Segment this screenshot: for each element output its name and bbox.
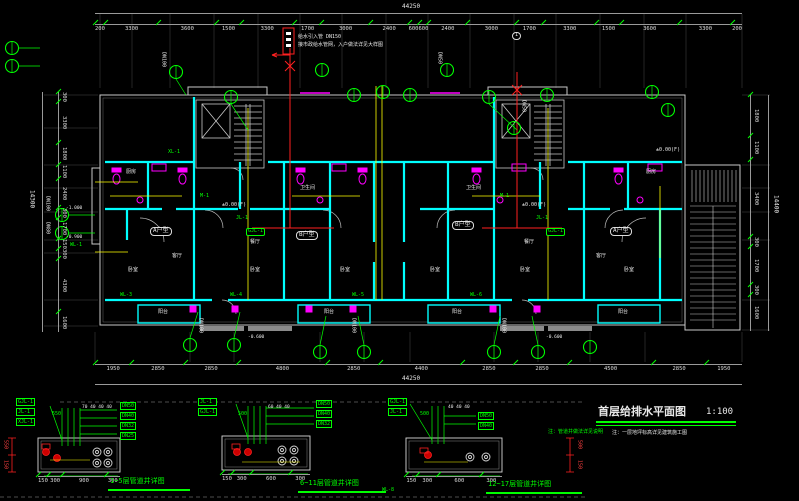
balcony-rails bbox=[138, 305, 660, 323]
riser-wl5: WL-5 bbox=[352, 293, 364, 299]
detail3-corner-label: WL-8 bbox=[382, 488, 394, 494]
detail3-right-labels: DN50DN40 bbox=[478, 412, 494, 430]
dim-chain-left: 3003300180011002400300170015030043001600 bbox=[58, 92, 69, 332]
elev-minus06-2: -0.600 bbox=[546, 336, 562, 341]
detail2-left-labels: JL-1GJL-1 bbox=[198, 398, 217, 416]
elev-minus10: -1.000 bbox=[66, 207, 82, 212]
basin-fixtures bbox=[137, 197, 643, 203]
dim-chain-top: 2003300360015003300170030002400600600240… bbox=[95, 24, 742, 32]
room-bedroom-2: 卧室 bbox=[250, 268, 260, 274]
elev-minus06-1: -0.600 bbox=[248, 336, 264, 341]
detail3-top-spacing: 40 40 40 bbox=[448, 406, 470, 411]
dim-line-top-overall bbox=[95, 13, 742, 14]
detail1-top-spacing: 70 40 40 40 bbox=[82, 406, 112, 411]
annex-stair bbox=[690, 170, 736, 328]
riser-wl3: WL-3 bbox=[120, 293, 132, 299]
supply-note-line1: 给水引入管 DN150 bbox=[298, 35, 341, 41]
detail3-note: 注：管道井做法详见说明 bbox=[548, 430, 603, 436]
pipe-dn50-t1: DN50 bbox=[436, 52, 442, 64]
drawing-sheet: 2003300360015003300170030002400600600240… bbox=[0, 0, 799, 501]
unit-label-a2: A户型 bbox=[610, 227, 632, 236]
unit-label-b2: B户型 bbox=[452, 221, 474, 230]
room-living-1: 客厅 bbox=[172, 254, 182, 260]
stair-core-left bbox=[196, 100, 264, 168]
detail1-side-dim-1: 550 bbox=[2, 440, 8, 449]
room-dining-1: 餐厅 bbox=[250, 240, 260, 246]
riser-circles bbox=[6, 42, 675, 359]
dim-line-right-overall bbox=[768, 95, 769, 331]
riser-xl1: XL-1 bbox=[168, 150, 180, 156]
pipe-dn100-b3: DN100 bbox=[500, 318, 506, 333]
grid-lines bbox=[44, 14, 770, 362]
detail-boxes bbox=[38, 436, 502, 472]
unit-label-b1: B户型 bbox=[296, 231, 318, 240]
detail2-side-dim-1: 500 bbox=[576, 440, 582, 449]
riser-wl6: WL-6 bbox=[470, 293, 482, 299]
elev-minus09: -0.900 bbox=[66, 236, 82, 241]
detail2-side-dim-2: 150 bbox=[576, 460, 582, 469]
toilet-fixtures bbox=[112, 168, 623, 184]
dim-line-bottom-overall bbox=[95, 384, 742, 385]
riser-symbols bbox=[6, 41, 675, 359]
room-kitchen-2: 厨房 bbox=[646, 170, 656, 176]
washer-fixtures bbox=[190, 306, 540, 312]
elev-zero-left: ±0.00(F) bbox=[222, 203, 246, 209]
elev-zero-right: ±0.00(F) bbox=[522, 203, 546, 209]
pipe-dn100-b1: DN100 bbox=[197, 318, 203, 333]
title-underline-1 bbox=[596, 421, 736, 423]
room-bath-2: 卫生间 bbox=[466, 186, 481, 192]
sheet-scale: 1:100 bbox=[706, 408, 733, 418]
room-bedroom-5: 卧室 bbox=[520, 268, 530, 274]
riser-m1-left: M-1 bbox=[200, 194, 209, 200]
pipe-dn80-left: DN80 bbox=[44, 222, 50, 234]
detail1-top-dim: 550 bbox=[52, 412, 61, 418]
riser-wl4: WL-4 bbox=[230, 293, 242, 299]
room-kitchen-1: 厨房 bbox=[126, 170, 136, 176]
riser-gjl1-left: GJL-1 bbox=[246, 228, 265, 236]
pipe-dn100-t1: DN100 bbox=[160, 52, 166, 67]
stair-core-right bbox=[496, 100, 564, 168]
detail-red-fixtures bbox=[42, 444, 432, 462]
detail2-bottom-dims: 150300600300 bbox=[222, 474, 310, 482]
room-balcony-4: 阳台 bbox=[618, 310, 628, 316]
interior-walls bbox=[105, 97, 682, 300]
riser-m1-right: M-1 bbox=[500, 194, 509, 200]
riser-jl1-left: JL-1 bbox=[236, 216, 248, 222]
room-living-2: 客厅 bbox=[596, 254, 606, 260]
room-bedroom-4: 卧室 bbox=[430, 268, 440, 274]
dim-bottom-overall: 44250 bbox=[402, 376, 420, 383]
dim-left-overall: 14300 bbox=[28, 190, 35, 208]
room-dining-2: 餐厅 bbox=[524, 240, 534, 246]
balcony-slabs bbox=[200, 326, 592, 331]
bathtub-fixtures bbox=[152, 164, 662, 171]
dim-chain-bottom: 1950285028504800285044002850285045002850… bbox=[95, 364, 742, 372]
room-bedroom-6: 卧室 bbox=[624, 268, 634, 274]
section-marker: 1 bbox=[512, 32, 521, 40]
supply-note-line2: 接市政给水管网，入户做法详见大样图 bbox=[298, 43, 383, 49]
detail2-top-dim: 500 bbox=[238, 412, 247, 418]
dim-chain-right: 18001100340030017003001600 bbox=[750, 95, 761, 331]
detail1-bottom-dims: 150300900300 bbox=[38, 476, 120, 484]
detail2-right-labels: DN50DN40DN32 bbox=[316, 400, 332, 428]
pipe-dn100-b2: DN100 bbox=[350, 318, 356, 333]
room-bath-1: 卫生间 bbox=[300, 186, 315, 192]
dim-top-overall: 44250 bbox=[402, 4, 420, 11]
riser-gjl1-right: GJL-1 bbox=[546, 228, 565, 236]
riser-wl1: WL-1 bbox=[70, 243, 82, 249]
room-bedroom-1: 卧室 bbox=[128, 268, 138, 274]
pipe-dn50-red: DN50 bbox=[520, 100, 526, 112]
detail2-top-spacing: 60 40 40 bbox=[268, 406, 290, 411]
detail1-underline bbox=[108, 489, 190, 491]
detail2-underline bbox=[298, 491, 386, 493]
room-balcony-1: 阳台 bbox=[158, 310, 168, 316]
elev-zero-annex: ±0.00(F) bbox=[656, 148, 680, 154]
detail-pipes bbox=[44, 404, 500, 476]
detail1-side-dim-2: 150 bbox=[2, 460, 8, 469]
dim-right-overall: 14400 bbox=[772, 195, 779, 213]
title-underline-2 bbox=[596, 425, 736, 426]
detail3-underline bbox=[486, 492, 582, 494]
detail3-left-labels: GJL-1JL-1 bbox=[388, 398, 407, 416]
room-balcony-3: 阳台 bbox=[452, 310, 462, 316]
riser-jl1-right: JL-1 bbox=[536, 216, 548, 222]
room-balcony-2: 阳台 bbox=[324, 310, 334, 316]
detail1-right-labels: DN50DN40DN32DN25 bbox=[120, 402, 136, 440]
drain-pipes bbox=[95, 86, 660, 300]
detail1-title: 1~5层管道井详图 bbox=[110, 478, 165, 486]
sheet-title: 首层给排水平面图 bbox=[598, 406, 686, 418]
room-bedroom-3: 卧室 bbox=[340, 268, 350, 274]
door-arcs bbox=[140, 168, 646, 314]
detail1-left-labels: GJL-1JL-1XJL-1 bbox=[16, 398, 35, 426]
unit-label-a1: A户型 bbox=[150, 227, 172, 236]
pipe-dn100-left: DN100 bbox=[44, 196, 50, 211]
detail-yellow bbox=[50, 460, 468, 462]
dim-line-left-overall bbox=[42, 92, 43, 332]
detail2-title: 6~11层管道井详图 bbox=[300, 480, 359, 488]
sheet-note: 注：一层地坪标高详见建筑施工图 bbox=[612, 431, 687, 437]
detail3-title: 12~17层管道井详图 bbox=[488, 481, 551, 489]
detail3-top-dim: 500 bbox=[420, 412, 429, 418]
